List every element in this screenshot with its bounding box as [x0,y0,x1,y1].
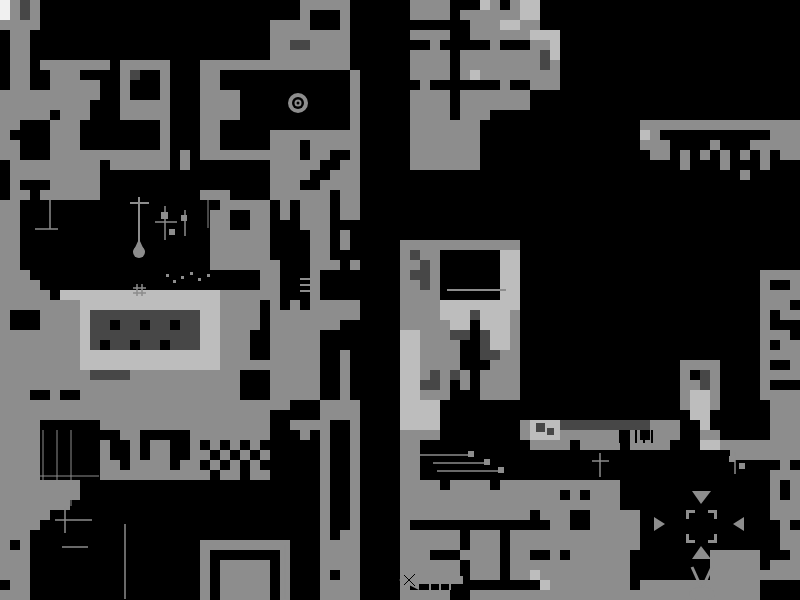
world-map-canvas [0,0,800,600]
map-viewport [0,0,800,600]
